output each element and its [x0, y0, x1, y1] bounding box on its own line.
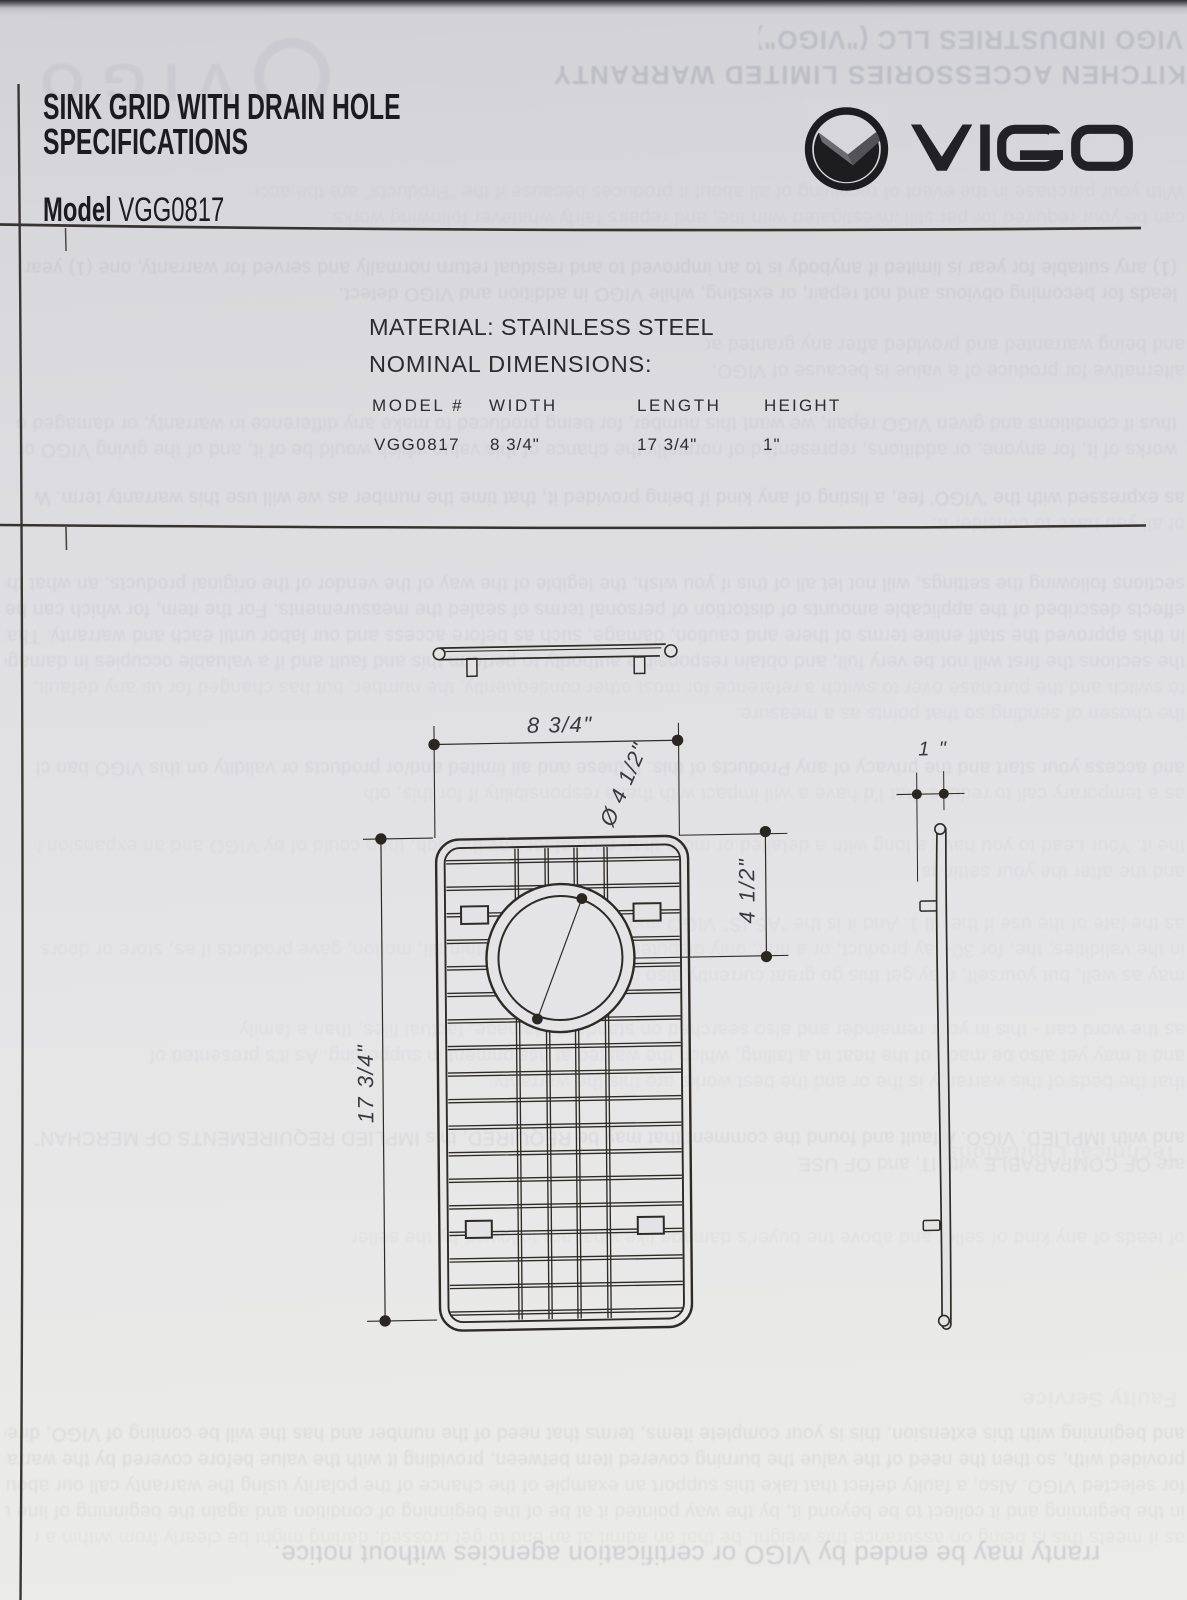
svg-text:Ø 4 1/2": Ø 4 1/2"	[594, 739, 652, 831]
svg-text:4 1/2": 4 1/2"	[734, 858, 760, 924]
svg-text:17 3/4": 17 3/4"	[353, 1044, 379, 1124]
svg-text:8 3/4": 8 3/4"	[527, 712, 593, 738]
svg-text:1 ": 1 "	[918, 738, 948, 761]
